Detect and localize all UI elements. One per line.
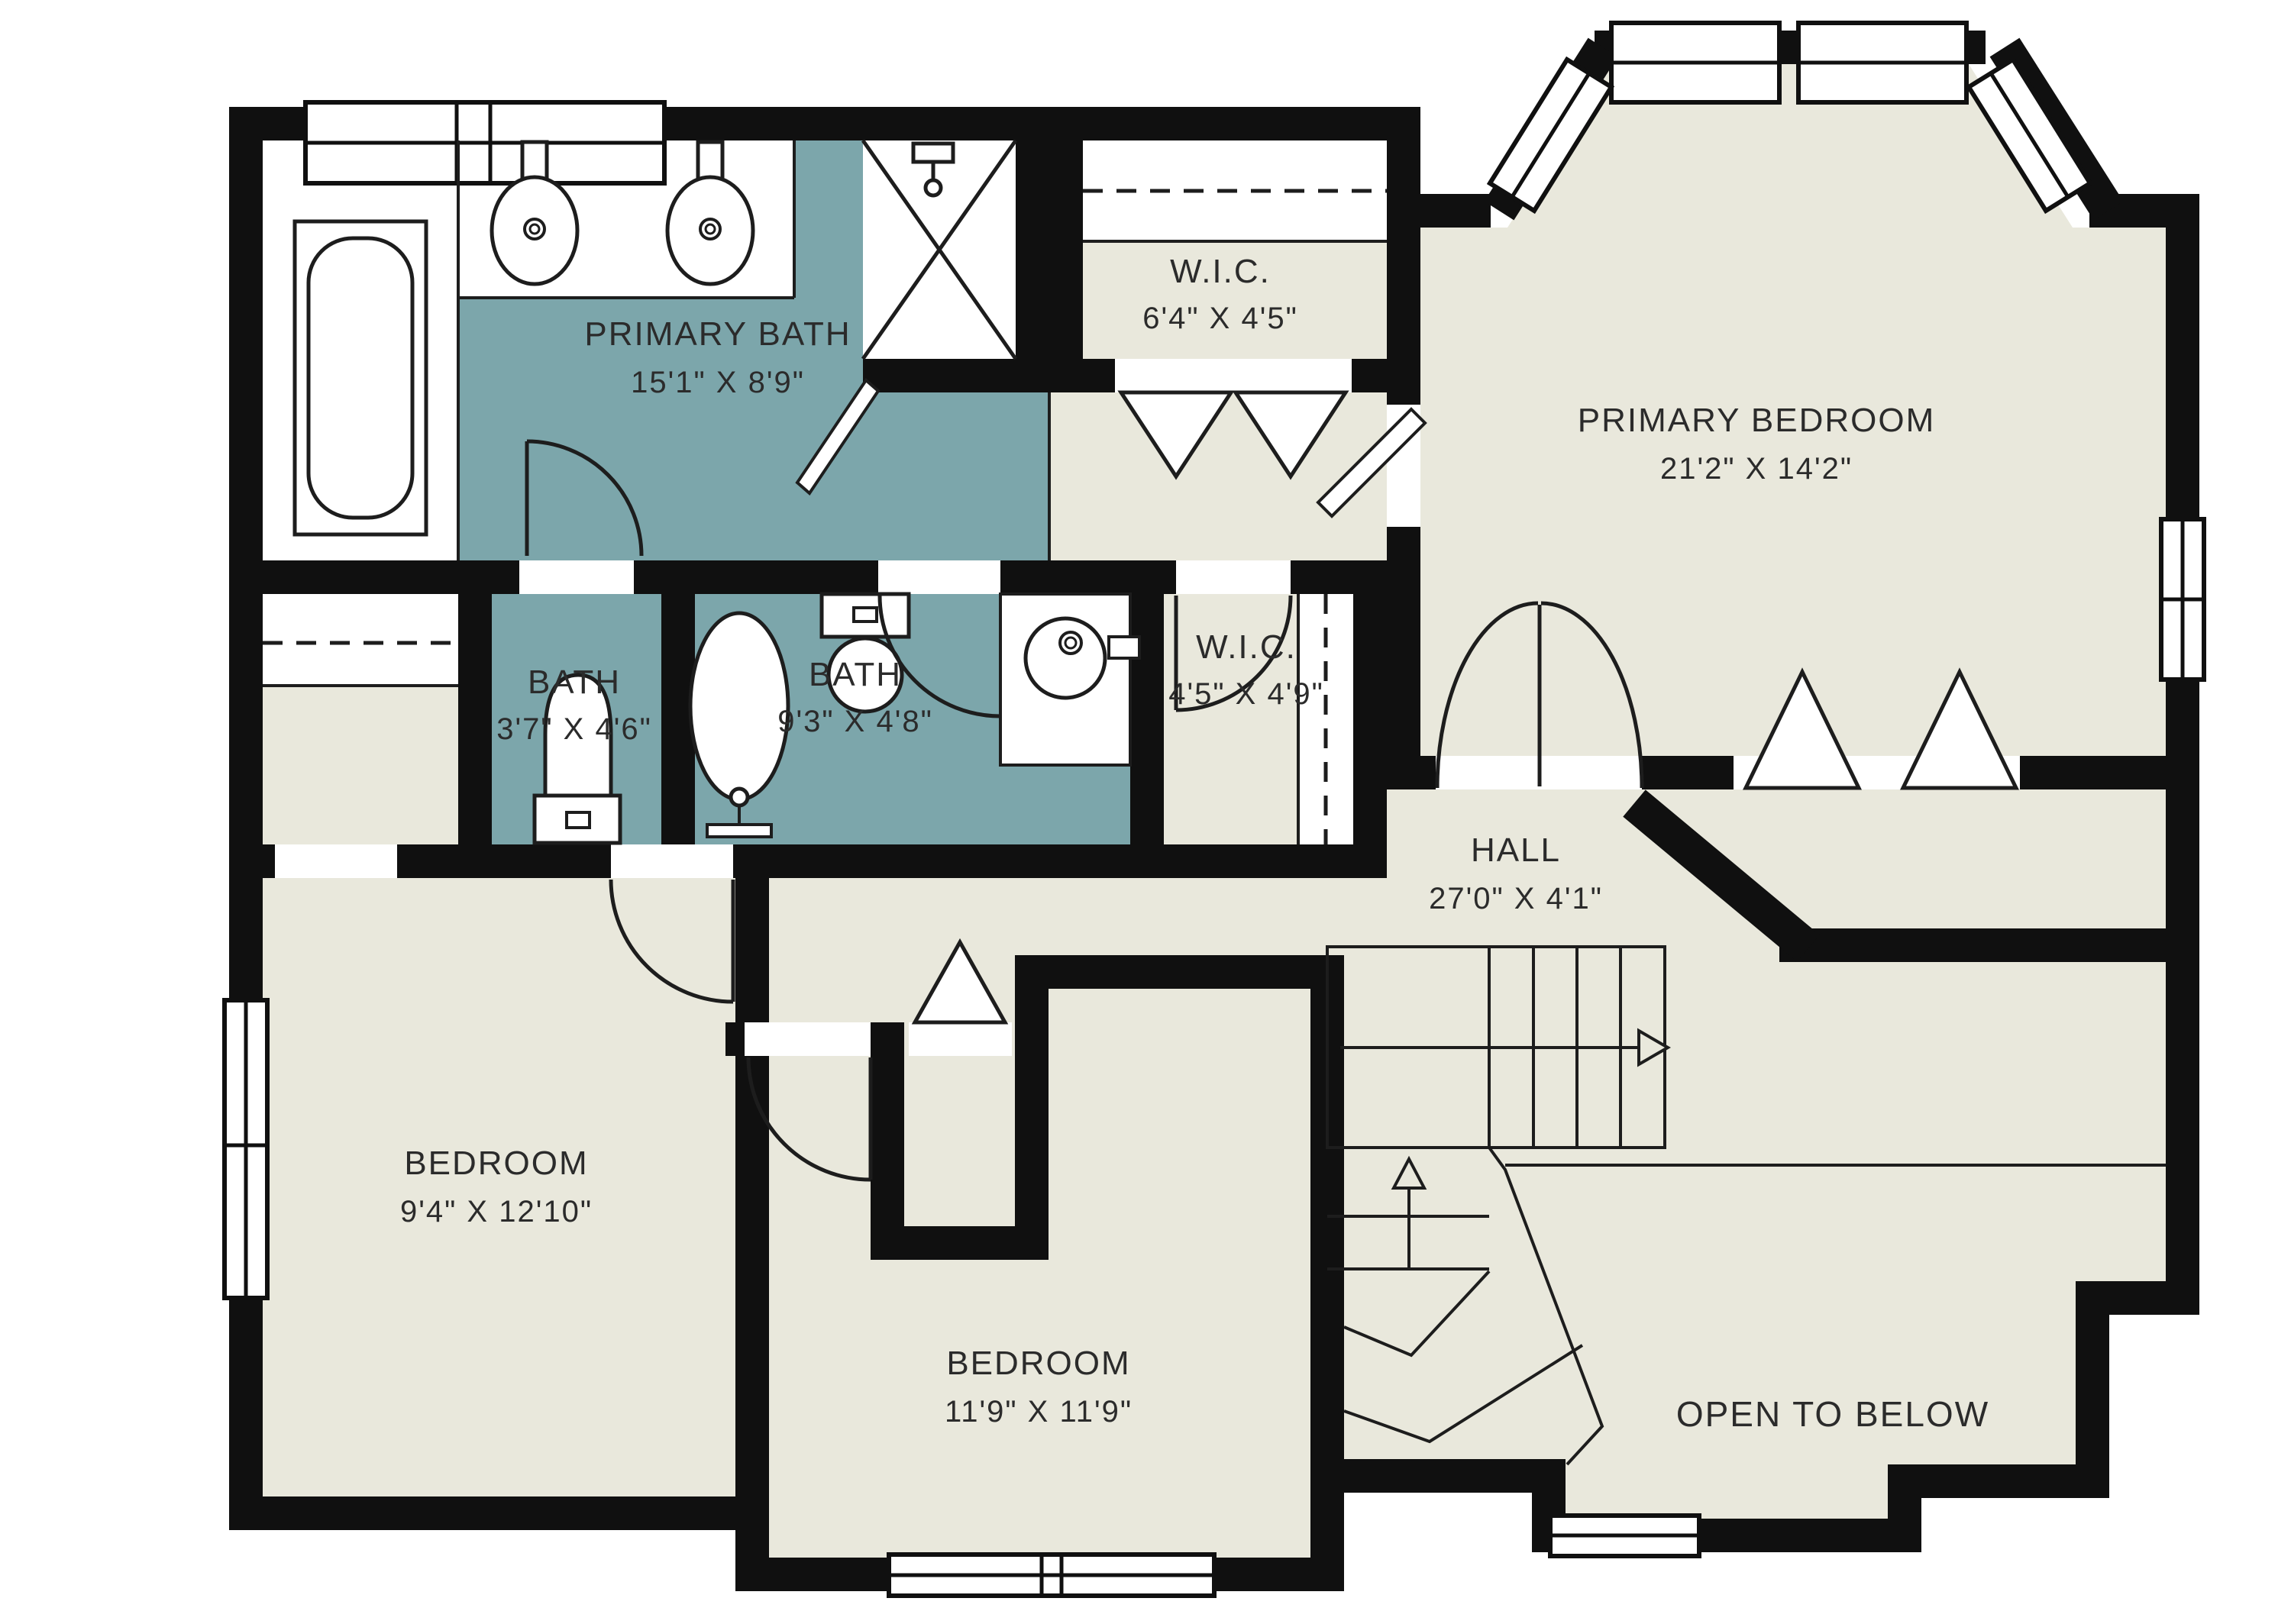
window-bay-2 (1798, 23, 1966, 102)
room-name-label: W.I.C. (1170, 253, 1271, 290)
room-dims-label: 4'5" X 4'9" (1168, 677, 1324, 711)
room-name-label: BEDROOM (404, 1145, 588, 1182)
closet-left-shelf (263, 594, 458, 686)
room-dims-label: 27'0" X 4'1" (1429, 882, 1603, 915)
window-right-wall (2161, 519, 2204, 680)
room-name-label: BEDROOM (946, 1345, 1130, 1382)
door-gap-bath-small (519, 560, 634, 594)
door-gap-bc-closet (909, 1022, 1012, 1056)
door-gap-wic2 (1176, 560, 1291, 594)
door-gap-closet-left (275, 844, 397, 878)
room-dims-label: 9'4" X 12'10" (400, 1195, 593, 1228)
door-gap-bedroom-center (745, 1022, 871, 1056)
room-name-label: PRIMARY BATH (584, 315, 851, 353)
room-dims-label: 11'9" X 11'9" (945, 1395, 1133, 1429)
stair-landing-area (1327, 928, 1679, 1157)
room-dims-label: 15'1" X 8'9" (631, 366, 805, 399)
window-open-below-bottom (1550, 1516, 1699, 1556)
room-dims-label: 6'4" X 4'5" (1142, 302, 1298, 335)
room-dims-label: 9'3" X 4'8" (777, 705, 933, 738)
room-dims-label: 3'7" X 4'6" (496, 712, 652, 746)
room-name-label: BATH (528, 663, 621, 701)
room-name-label: BATH (809, 656, 902, 693)
open-to-below-label: OPEN TO BELOW (1676, 1394, 1989, 1434)
door-gap-wic1-bifold (1115, 359, 1352, 392)
tub-alcove (263, 140, 458, 560)
window-left-wall (225, 1000, 267, 1298)
floor-plan-canvas: PRIMARY BATH 15'1" X 8'9" W.I.C. 6'4" X … (0, 0, 2291, 1624)
room-name-label: PRIMARY BEDROOM (1578, 402, 1935, 439)
door-gap-bath2 (878, 560, 1000, 594)
window-bay-1 (1611, 23, 1779, 102)
vestibule-area (1049, 392, 1387, 560)
door-gap-bedroom-left (611, 844, 733, 878)
room-bedroom-left-area (263, 878, 735, 1496)
room-name-label: W.I.C. (1196, 628, 1297, 666)
window-top-left (305, 102, 664, 183)
room-dims-label: 21'2" X 14'2" (1660, 452, 1853, 486)
window-bedroom-center-bottom (889, 1555, 1214, 1596)
room-name-label: HALL (1471, 831, 1561, 869)
